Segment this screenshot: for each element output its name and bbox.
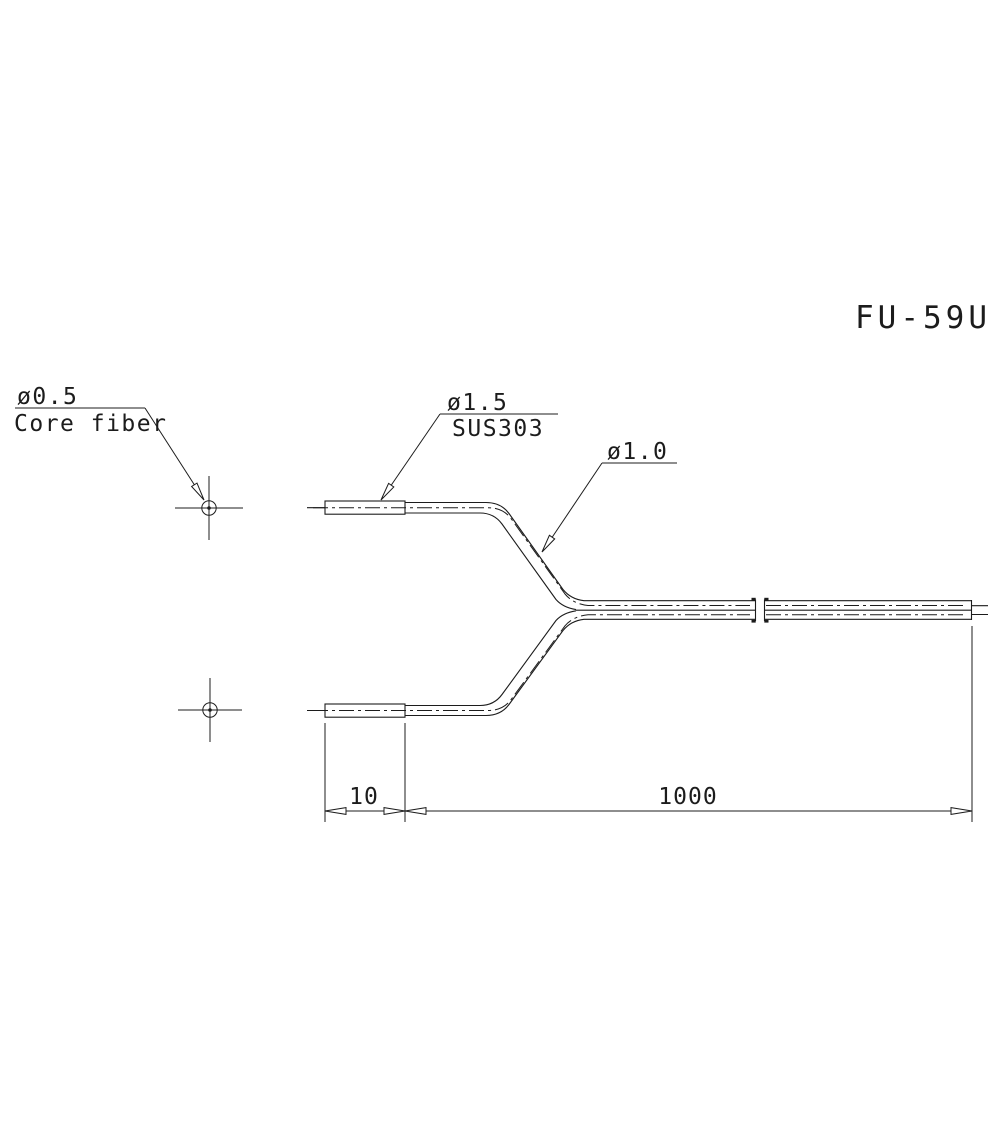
technical-drawing: FU-59U ø0.5 Core fiber ø1.5 SUS303 ø1.0: [0, 0, 1000, 1122]
fiber-core-dot: [207, 506, 211, 510]
centerline-upper: [313, 508, 750, 606]
leader-arrowhead: [381, 483, 394, 500]
cable-lower-bottom-edge: [405, 619, 755, 715]
callout-cable: ø1.0: [542, 439, 677, 552]
centerline-lower: [313, 615, 750, 711]
break-end-lines: [756, 600, 765, 622]
leader-line: [391, 414, 440, 486]
callout-sleeve: ø1.5 SUS303: [381, 390, 558, 500]
drawing-title: FU-59U: [855, 300, 991, 336]
sleeve-material-label: SUS303: [452, 416, 544, 442]
fiber-core-dot: [208, 708, 212, 712]
core-fiber-name-label: Core fiber: [14, 411, 167, 437]
dimension-sleeve-length: 10: [349, 784, 379, 810]
dim-arrowhead: [325, 808, 346, 815]
cable-lower-top-edge: [405, 611, 576, 706]
fiber-end-view-top: [175, 476, 243, 540]
fiber-end-view-bottom: [178, 678, 242, 742]
leader-line: [145, 408, 195, 485]
cable-upper-top-edge: [405, 503, 755, 601]
callout-core-fiber: ø0.5 Core fiber: [14, 384, 204, 500]
dimensions: 10 1000: [325, 626, 972, 822]
dim-arrowhead: [951, 808, 972, 815]
core-fiber-diameter-label: ø0.5: [17, 384, 78, 410]
cable-upper-bottom-edge: [405, 513, 576, 610]
dimension-cable-length: 1000: [658, 784, 717, 810]
sleeve-diameter-label: ø1.5: [447, 390, 508, 416]
leader-line: [552, 463, 602, 538]
core-fiber-stubs: [307, 508, 325, 711]
extension-lines: [325, 626, 972, 822]
fiber-assembly: [307, 501, 988, 717]
leader-arrowhead: [192, 483, 204, 500]
dim-arrowhead: [384, 808, 405, 815]
bare-fiber-ends: [972, 606, 989, 615]
leader-arrowhead: [542, 535, 555, 552]
cable-diameter-label: ø1.0: [607, 439, 668, 465]
dim-arrowhead: [405, 808, 426, 815]
